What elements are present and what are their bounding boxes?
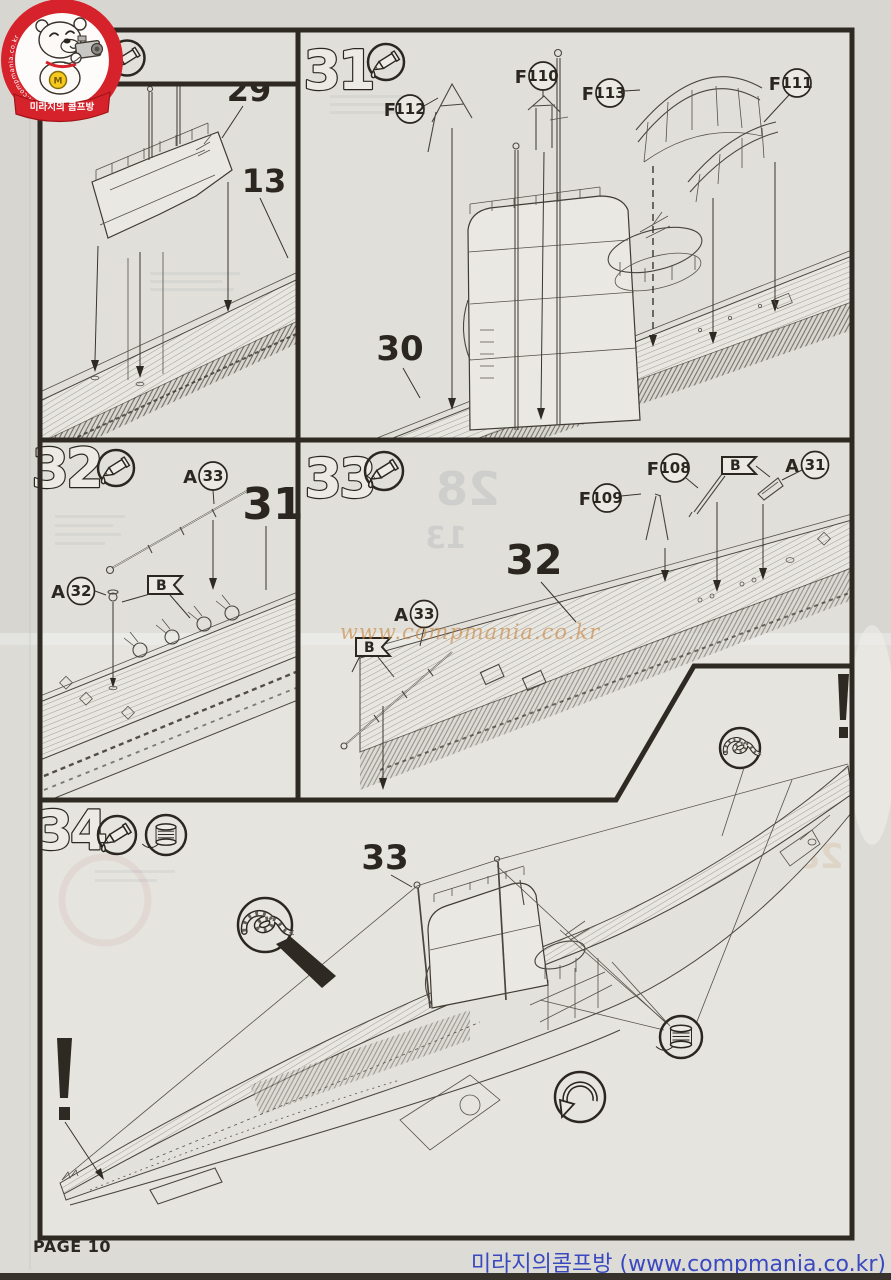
- callout-number: 31: [805, 456, 826, 474]
- sheet-canvas: 28 13 28: [0, 0, 891, 1280]
- step-number-34: 34: [35, 799, 106, 862]
- callout-number: 33: [203, 467, 224, 485]
- part-label-33: 33: [361, 838, 408, 878]
- callout-prefix: F: [769, 74, 781, 95]
- instruction-sheet-page: 28 13 28: [0, 0, 891, 1280]
- part-label-13: 13: [242, 162, 287, 200]
- watermark-text: www.compmania.co.kr: [340, 620, 601, 644]
- page-number-label: PAGE 10: [33, 1237, 111, 1256]
- callout-number: 113: [594, 84, 625, 102]
- callout-number: 109: [591, 489, 622, 507]
- callout-number: 110: [527, 67, 558, 85]
- ghost-number: 13: [425, 521, 467, 556]
- medal-letter: M: [54, 77, 63, 87]
- scan-bottom-edge: [0, 1273, 891, 1280]
- step-number-31: 31: [303, 39, 372, 102]
- callout-prefix: F: [515, 67, 527, 88]
- part-label-30: 30: [376, 329, 423, 369]
- callout-prefix: F: [647, 459, 659, 480]
- step-number-33: 33: [304, 447, 373, 510]
- part-label-32: 32: [505, 536, 562, 584]
- callout-prefix: A: [183, 467, 197, 488]
- ghost-number: 28: [436, 462, 500, 516]
- callout-number: 112: [394, 100, 425, 118]
- callout-number: 32: [71, 582, 92, 600]
- callout-prefix: A: [785, 456, 799, 477]
- callout-number: 108: [659, 459, 690, 477]
- part-label-31: 31: [242, 479, 303, 530]
- callout-number: 111: [781, 74, 812, 92]
- callout-prefix: A: [51, 582, 65, 603]
- callout-prefix: F: [579, 489, 591, 510]
- ribbon-text: 미라지의 콤프방: [30, 101, 95, 113]
- flag-letter: B: [156, 578, 167, 594]
- flag-letter: B: [730, 458, 741, 474]
- callout-prefix: F: [582, 84, 594, 105]
- mirage-compbang-logo: www.compmania.co.kr M 미: [7, 6, 116, 122]
